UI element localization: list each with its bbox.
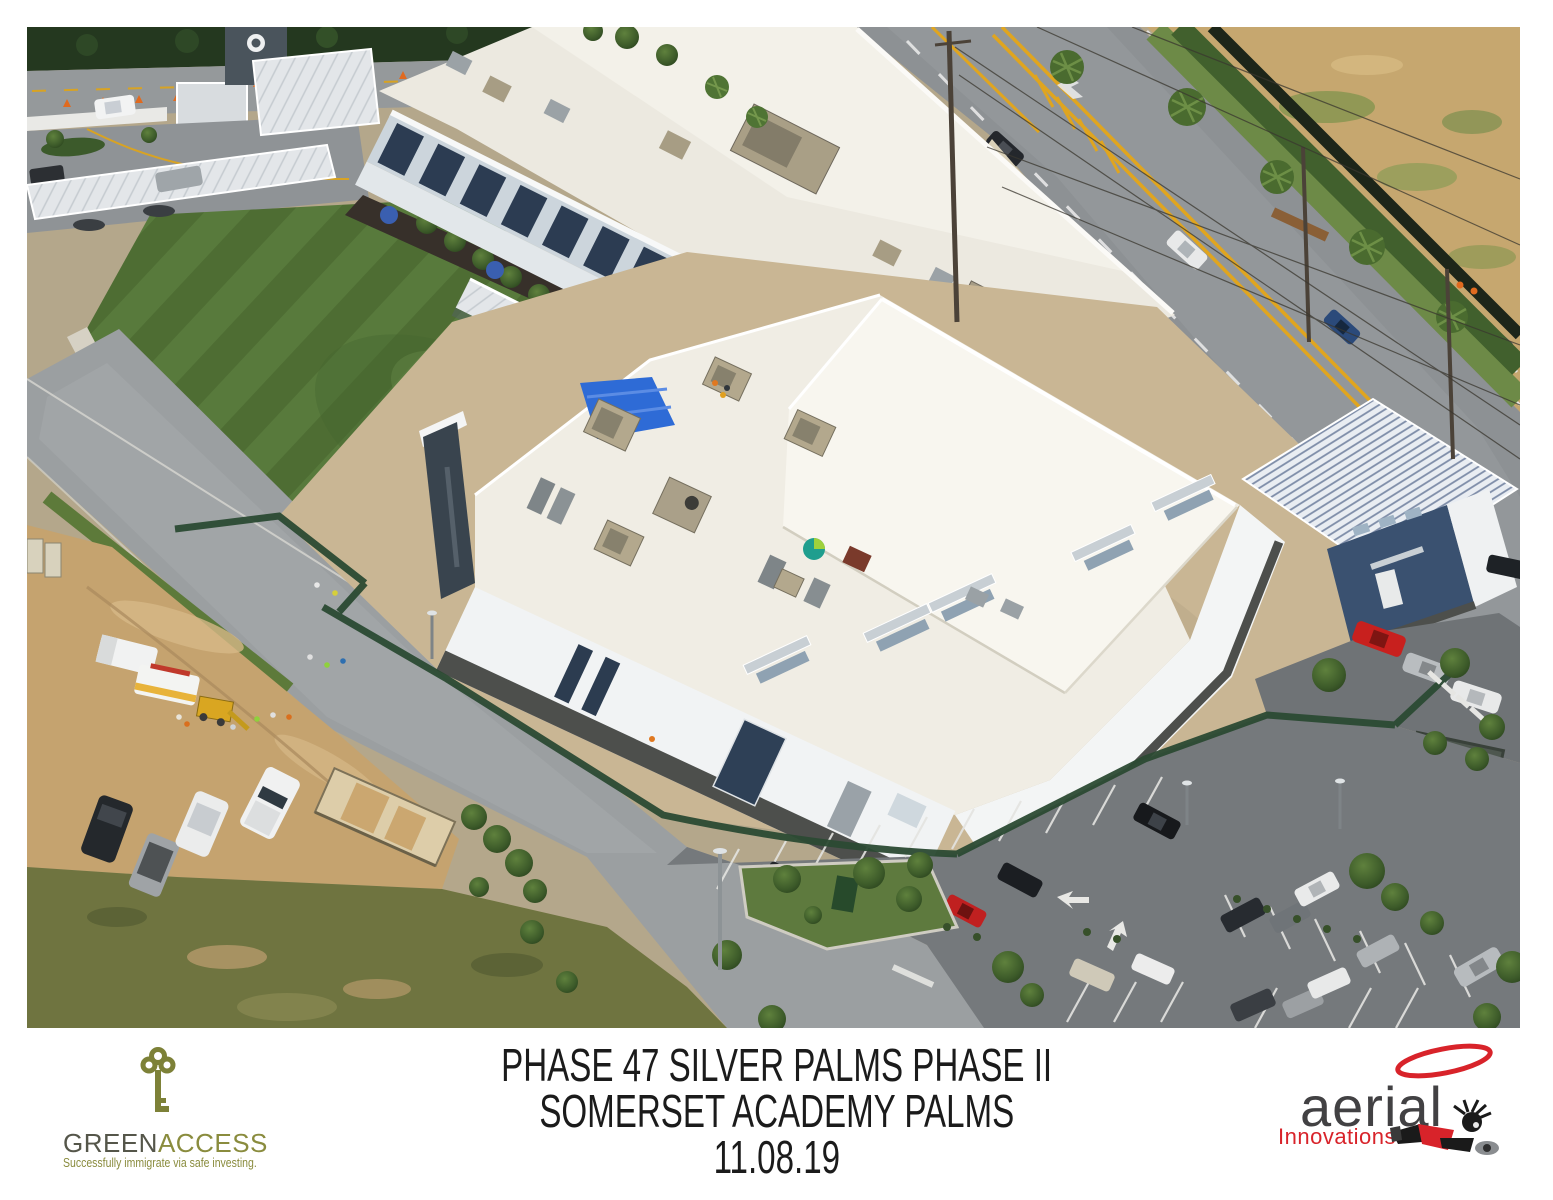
key-icon bbox=[138, 1046, 178, 1126]
greenaccess-tagline: Successfully immigrate via safe investin… bbox=[63, 1156, 294, 1170]
blue-umbrella bbox=[486, 261, 504, 279]
innovations-wordmark: Innovations bbox=[1278, 1124, 1396, 1150]
porta-potty bbox=[27, 539, 43, 573]
aerial-photo-frame bbox=[27, 27, 1520, 1028]
worker bbox=[720, 392, 726, 398]
aerial-innovations-logo: aerial Innovations bbox=[1270, 1040, 1540, 1190]
worker bbox=[724, 385, 730, 391]
greenaccess-wordmark: GREENACCESS bbox=[63, 1128, 268, 1159]
page: PHASE 47 SILVER PALMS PHASE II SOMERSET … bbox=[0, 0, 1553, 1200]
porta-potty bbox=[45, 543, 61, 577]
worker bbox=[712, 380, 718, 386]
aerial-photo bbox=[27, 27, 1520, 1028]
flying-photographer-icon bbox=[1388, 1096, 1503, 1166]
blue-umbrella bbox=[380, 206, 398, 224]
